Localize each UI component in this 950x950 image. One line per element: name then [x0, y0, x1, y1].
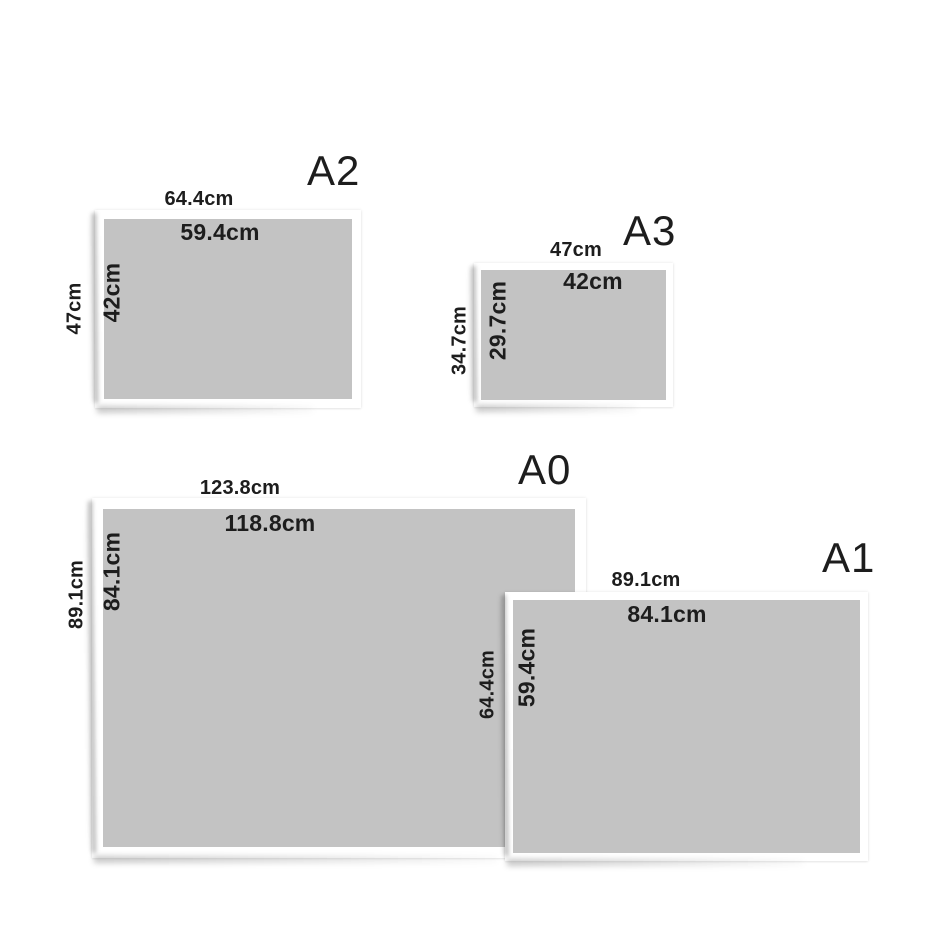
a3-frame-height-label: 34.7cm: [450, 271, 473, 411]
a2-print-height-label: 42cm: [101, 223, 124, 363]
a2-print-width-label: 59.4cm: [150, 221, 290, 244]
a1-print-area: [513, 600, 860, 853]
a3-print-height-label: 29.7cm: [487, 251, 510, 391]
a2-frame-width-label: 64.4cm: [129, 189, 269, 209]
a1-print-width-label: 84.1cm: [597, 603, 737, 626]
a1-frame-height-label: 64.4cm: [478, 615, 501, 755]
paper-size-title-a1: A1: [822, 537, 875, 579]
a0-print-width-label: 118.8cm: [200, 512, 340, 535]
a2-frame-height-label: 47cm: [65, 239, 88, 379]
a1-print-height-label: 59.4cm: [516, 598, 539, 738]
a0-frame-width-label: 123.8cm: [170, 478, 310, 498]
paper-size-title-a2: A2: [307, 150, 360, 192]
a1-paper-sheet: [505, 592, 868, 861]
a0-frame-height-label: 89.1cm: [67, 525, 90, 665]
a3-print-width-label: 42cm: [523, 270, 663, 293]
a3-frame-width-label: 47cm: [506, 240, 646, 260]
a0-print-height-label: 84.1cm: [101, 502, 124, 642]
a2-print-area: [104, 219, 352, 399]
a1-frame-width-label: 89.1cm: [576, 570, 716, 590]
paper-size-comparison-diagram: A2 64.4cm 47cm 59.4cm 42cm A3 47cm 34.7c…: [0, 0, 950, 950]
paper-size-title-a0: A0: [518, 449, 571, 491]
